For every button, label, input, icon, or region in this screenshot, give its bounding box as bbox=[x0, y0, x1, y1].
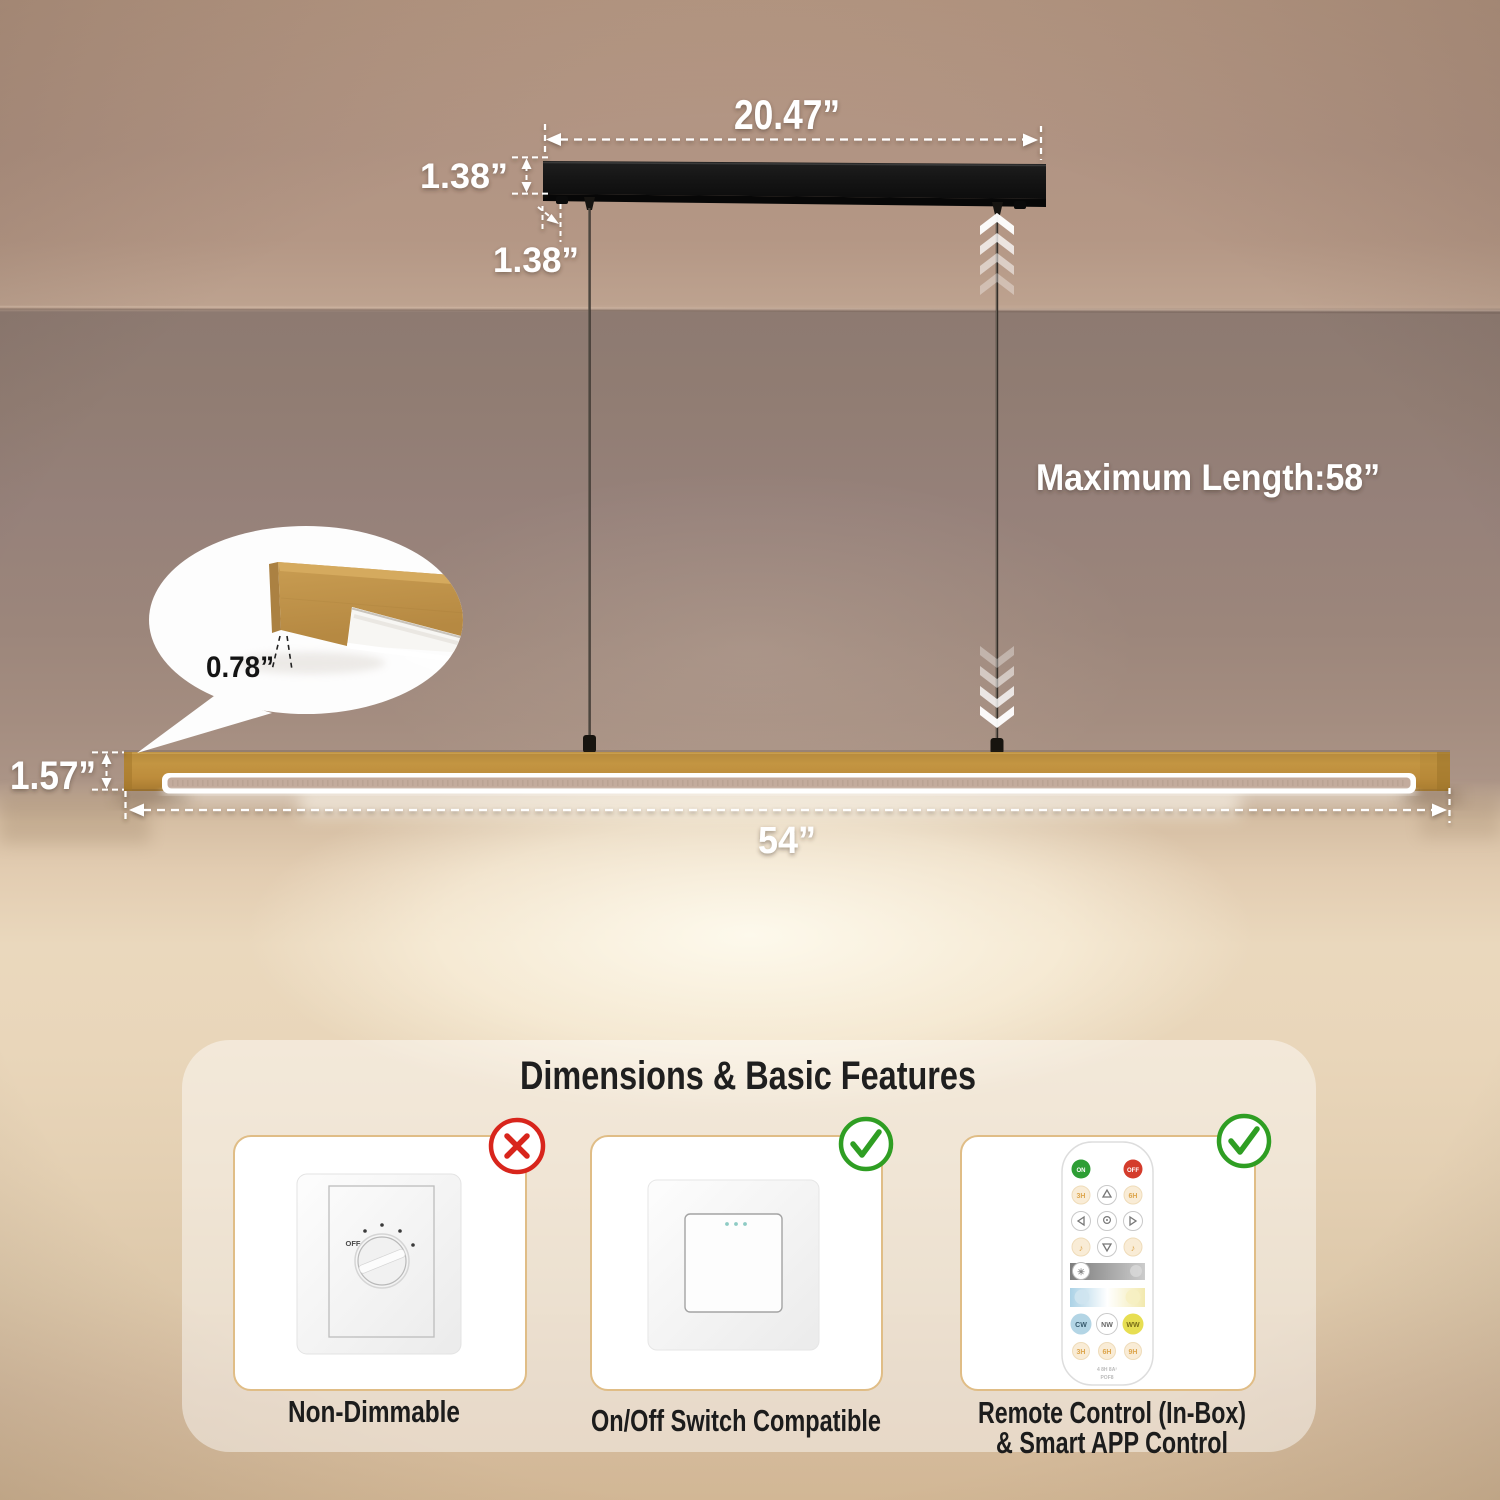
svg-text:Non-Dimmable: Non-Dimmable bbox=[288, 1394, 460, 1429]
svg-text:54”: 54” bbox=[758, 820, 816, 862]
svg-text:Maximum Length:58”: Maximum Length:58” bbox=[1036, 457, 1380, 498]
svg-text:1.57”: 1.57” bbox=[10, 754, 96, 798]
svg-text:1.38”: 1.38” bbox=[420, 157, 508, 196]
svg-text:CW: CW bbox=[1075, 1322, 1087, 1329]
svg-text:♪: ♪ bbox=[1079, 1243, 1084, 1253]
svg-text:OFF: OFF bbox=[1127, 1168, 1139, 1174]
svg-text:♪: ♪ bbox=[1131, 1243, 1136, 1253]
svg-text:4 8H 8A²: 4 8H 8A² bbox=[1097, 1367, 1117, 1373]
svg-text:POF8: POF8 bbox=[1100, 1375, 1113, 1381]
svg-text:20.47”: 20.47” bbox=[734, 91, 840, 138]
svg-text:ON: ON bbox=[1077, 1168, 1086, 1174]
svg-text:NW: NW bbox=[1101, 1322, 1113, 1329]
svg-text:Dimensions & Basic Features: Dimensions & Basic Features bbox=[520, 1054, 976, 1098]
svg-text:3H: 3H bbox=[1077, 1349, 1086, 1356]
svg-text:On/Off Switch Compatible: On/Off Switch Compatible bbox=[591, 1403, 881, 1438]
svg-text:6H: 6H bbox=[1129, 1193, 1138, 1200]
svg-text:& Smart APP Control: & Smart APP Control bbox=[996, 1425, 1228, 1460]
svg-text:3H: 3H bbox=[1077, 1193, 1086, 1200]
svg-text:6H: 6H bbox=[1103, 1349, 1112, 1356]
svg-text:1.38”: 1.38” bbox=[493, 241, 579, 280]
svg-text:0.78”: 0.78” bbox=[206, 651, 274, 684]
svg-text:OFF: OFF bbox=[346, 1239, 361, 1248]
svg-text:9H: 9H bbox=[1129, 1349, 1138, 1356]
svg-text:WW: WW bbox=[1126, 1322, 1140, 1329]
svg-text:☀: ☀ bbox=[1077, 1267, 1085, 1277]
